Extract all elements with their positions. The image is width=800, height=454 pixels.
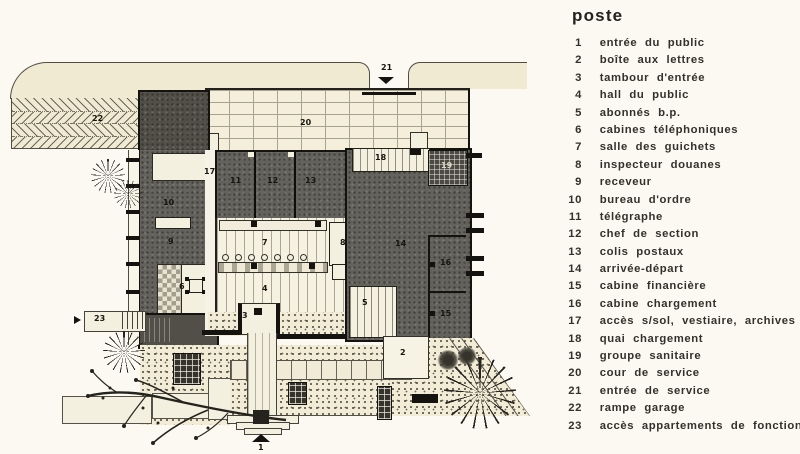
plan-label-16: 16 [440, 259, 451, 267]
bp-subscribers [349, 286, 397, 338]
counter-block [251, 221, 257, 227]
table-icon [189, 279, 203, 293]
legend-item: 22 rampe garage [558, 400, 800, 417]
window-stub [126, 210, 139, 214]
legend-item-label: télégraphe [600, 211, 663, 223]
window-stub [126, 236, 139, 240]
plan-label-23: 23 [94, 315, 105, 323]
legend-item: 4 hall du public [558, 87, 800, 104]
legend-item-label: chef de section [600, 228, 699, 240]
legend-panel: poste 1 entrée du public 2 boîte aux let… [558, 0, 800, 454]
stair-access-17 [152, 153, 210, 181]
rooms-11-12-13 [215, 150, 351, 222]
legend-item-label: bureau d'ordre [600, 194, 692, 206]
central-corridor [205, 150, 215, 336]
legend-item-number: 4 [558, 87, 582, 104]
plan-label-2: 2 [400, 349, 406, 357]
legend-item-label: inspecteur douanes [600, 159, 722, 171]
counter-block [315, 221, 321, 227]
legend-item: 9 receveur [558, 174, 800, 191]
window-stub [126, 262, 139, 266]
legend-item-label: cour de service [600, 367, 700, 379]
legend-item-label: colis postaux [600, 246, 684, 258]
plan-label-17: 17 [204, 168, 215, 176]
stool-circle [235, 254, 242, 261]
plan-label-22: 22 [92, 115, 103, 123]
legend-item: 16 cabine chargement [558, 296, 800, 313]
legend-item-label: accès s/sol, vestiaire, archives [600, 315, 796, 327]
legend-title: poste [572, 6, 800, 26]
legend-item-number: 11 [558, 209, 582, 226]
legend-item: 19 groupe sanitaire [558, 348, 800, 365]
dock-tab [410, 149, 421, 155]
legend-item-label: rampe garage [600, 402, 685, 414]
plan-label-21: 21 [381, 64, 392, 72]
window-stub [466, 271, 484, 276]
plan-label-15: 15 [440, 310, 451, 318]
legend-item-label: tambour d'entrée [600, 72, 705, 84]
legend-item-label: cabine financière [600, 280, 707, 292]
service-courtyard [205, 88, 470, 152]
bush-icon [437, 350, 459, 370]
plan-label-8: 8 [340, 239, 346, 247]
stool-circle [261, 254, 268, 261]
legend-item: 6 cabines téléphoniques [558, 122, 800, 139]
legend-item-number: 7 [558, 139, 582, 156]
legend-item-number: 16 [558, 296, 582, 313]
bench-bar [412, 394, 438, 403]
plan-label-12: 12 [267, 177, 278, 185]
plan-label-18: 18 [375, 154, 386, 162]
chair-icon [185, 277, 189, 281]
service-entrance-arrow-icon [378, 77, 394, 84]
legend-item: 13 colis postaux [558, 244, 800, 261]
ramp-garage [11, 98, 141, 149]
window-stub [126, 290, 139, 294]
door-mark [430, 311, 435, 316]
window-stub [466, 153, 482, 158]
legend-item: 5 abonnés b.p. [558, 105, 800, 122]
window-stub [466, 256, 484, 261]
window-stub [466, 228, 484, 233]
legend-item: 20 cour de service [558, 365, 800, 382]
legend-item-label: cabines téléphoniques [600, 124, 738, 136]
legend-item-number: 14 [558, 261, 582, 278]
legend-item: 15 cabine financière [558, 278, 800, 295]
apartments-access-arrow-icon [74, 316, 81, 324]
legend-item-label: entrée du public [600, 37, 705, 49]
legend-item: 12 chef de section [558, 226, 800, 243]
south-wall-right [272, 334, 347, 339]
planter-grid [377, 386, 392, 420]
legend-item-number: 8 [558, 157, 582, 174]
legend-item-label: hall du public [600, 89, 689, 101]
legend-item: 2 boîte aux lettres [558, 52, 800, 69]
star-plant-icon [103, 331, 145, 373]
counter-block [309, 263, 315, 269]
legend-item-label: boîte aux lettres [600, 54, 705, 66]
legend-item-label: abonnés b.p. [600, 107, 681, 119]
legend-item: 18 quai chargement [558, 331, 800, 348]
legend-item-number: 5 [558, 105, 582, 122]
plan-label-7: 7 [262, 239, 268, 247]
counter-block [251, 263, 257, 269]
stool-circle [287, 254, 294, 261]
legend-item-number: 15 [558, 278, 582, 295]
chair-icon [185, 290, 189, 294]
plan-label-19: 19 [441, 162, 452, 170]
legend-item-number: 12 [558, 226, 582, 243]
floor-plan-page: 21 22 20 17 10 9 6 [0, 0, 800, 454]
legend-item-label: cabine chargement [600, 298, 717, 310]
legend-item-number: 3 [558, 70, 582, 87]
plan-label-10: 10 [163, 199, 174, 207]
plan-label-3: 3 [242, 312, 248, 320]
window-stub [126, 158, 139, 162]
stool-circle [274, 254, 281, 261]
garage-block [138, 90, 210, 156]
legend-item-number: 6 [558, 122, 582, 139]
legend-item-label: entrée de service [600, 385, 711, 397]
legend-item: 7 salle des guichets [558, 139, 800, 156]
wall-16-15 [428, 235, 430, 338]
legend-item: 10 bureau d'ordre [558, 192, 800, 209]
legend-item-label: groupe sanitaire [600, 350, 702, 362]
legend-item: 1 entrée du public [558, 35, 800, 52]
tree-branch-icon [58, 368, 293, 448]
legend-item-label: receveur [600, 176, 652, 188]
legend-item-number: 22 [558, 400, 582, 417]
legend-item-number: 20 [558, 365, 582, 382]
site-boundary-right [408, 62, 527, 89]
legend-item-number: 1 [558, 35, 582, 52]
letterbox-area [383, 336, 429, 379]
plan-label-20: 20 [300, 119, 311, 127]
legend-item-number: 18 [558, 331, 582, 348]
legend-item-label: accès appartements de fonction [600, 420, 800, 432]
desk-slot [155, 217, 191, 229]
legend-item: 23 accès appartements de fonction [558, 418, 800, 435]
bush-icon [457, 347, 477, 365]
legend-item: 21 entrée de service [558, 383, 800, 400]
door-mark [254, 308, 262, 315]
entrance-recessed-wall [362, 92, 416, 95]
stool-circle [300, 254, 307, 261]
counter-top [219, 220, 327, 231]
legend-item: 11 télégraphe [558, 209, 800, 226]
stool-circle [222, 254, 229, 261]
south-wall-left [202, 330, 238, 335]
wall-15-top [428, 291, 466, 293]
legend-list: 1 entrée du public 2 boîte aux lettres 3… [558, 35, 800, 435]
wall-16-top [428, 235, 466, 237]
plan-label-6: 6 [179, 283, 185, 291]
star-plant-icon [114, 180, 142, 208]
legend-item-number: 17 [558, 313, 582, 330]
legend-item-number: 21 [558, 383, 582, 400]
legend-item: 14 arrivée-départ [558, 261, 800, 278]
legend-item-number: 13 [558, 244, 582, 261]
plan-label-1: 1 [258, 444, 264, 452]
legend-item: 3 tambour d'entrée [558, 70, 800, 87]
legend-item-number: 10 [558, 192, 582, 209]
legend-item: 8 inspecteur douanes [558, 157, 800, 174]
legend-item-label: quai chargement [600, 333, 703, 345]
legend-item-label: salle des guichets [600, 141, 716, 153]
legend-item: 17 accès s/sol, vestiaire, archives [558, 313, 800, 330]
legend-item-number: 2 [558, 52, 582, 69]
legend-item-number: 23 [558, 418, 582, 435]
legend-item-number: 9 [558, 174, 582, 191]
legend-item-number: 19 [558, 348, 582, 365]
plan-label-9: 9 [168, 238, 174, 246]
plan-label-11: 11 [230, 177, 241, 185]
plan-label-13: 13 [305, 177, 316, 185]
plan-label-14: 14 [395, 240, 406, 248]
window-stub [466, 213, 484, 218]
apartments-walkway-steps [122, 312, 144, 329]
door-mark [430, 262, 435, 267]
legend-item-label: arrivée-départ [600, 263, 684, 275]
stool-circle [248, 254, 255, 261]
plan-label-5: 5 [362, 299, 368, 307]
plan-label-4: 4 [262, 285, 268, 293]
